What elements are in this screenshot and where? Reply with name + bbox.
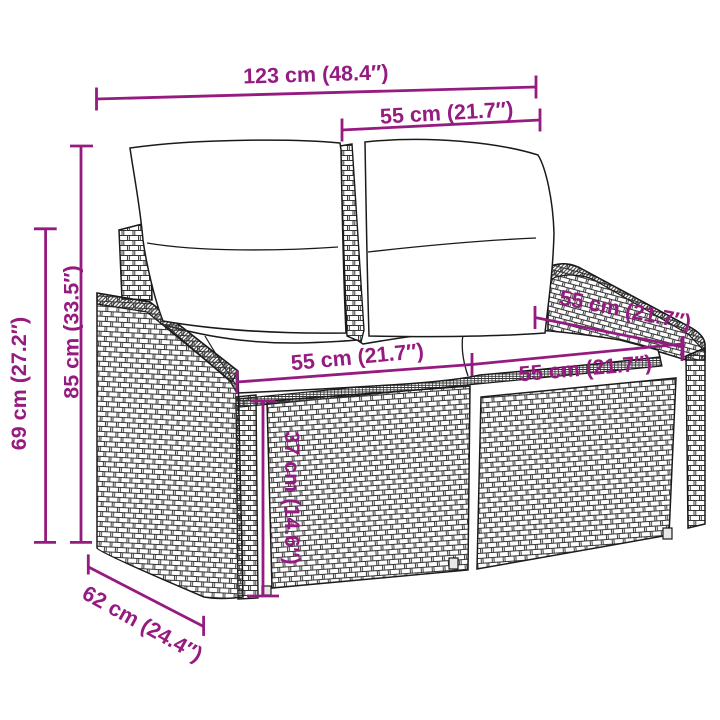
svg-text:85 cm (33.5″): 85 cm (33.5″): [60, 265, 84, 398]
svg-text:69 cm (27.2″): 69 cm (27.2″): [7, 317, 31, 450]
svg-text:37 cm (14.6″): 37 cm (14.6″): [280, 431, 304, 564]
svg-text:55 cm (21.7″): 55 cm (21.7″): [379, 97, 514, 128]
svg-text:123 cm (48.4″): 123 cm (48.4″): [243, 60, 389, 88]
